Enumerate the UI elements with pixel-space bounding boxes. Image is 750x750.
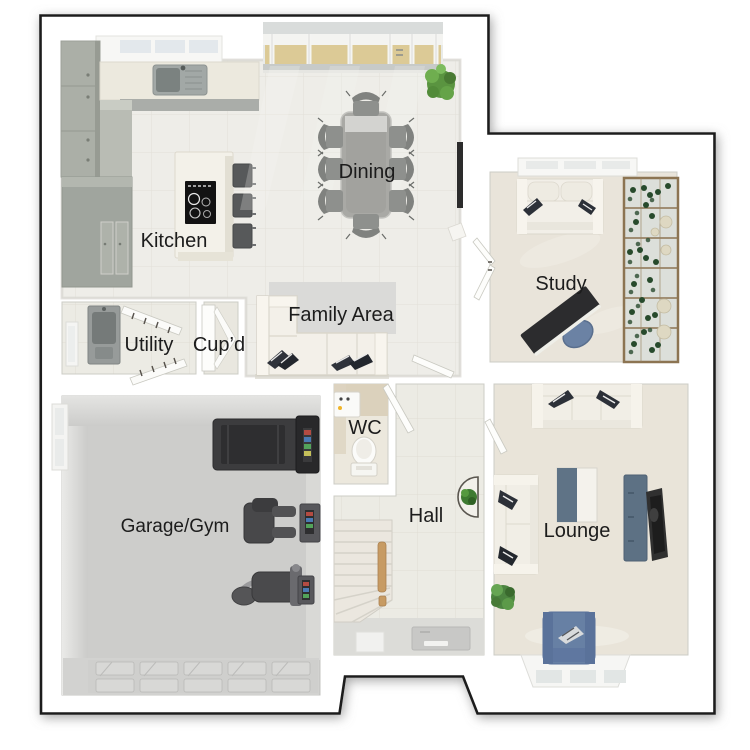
svg-text:Garage/Gym: Garage/Gym bbox=[121, 516, 230, 537]
svg-text:WC: WC bbox=[348, 417, 381, 439]
svg-text:Kitchen: Kitchen bbox=[141, 230, 208, 252]
svg-text:Dining: Dining bbox=[339, 161, 396, 183]
svg-text:Utility: Utility bbox=[125, 334, 174, 356]
svg-text:Family Area: Family Area bbox=[288, 304, 394, 326]
svg-text:Lounge: Lounge bbox=[544, 520, 611, 542]
svg-text:Hall: Hall bbox=[409, 505, 443, 527]
svg-text:Cup’d: Cup’d bbox=[193, 334, 245, 356]
svg-text:Study: Study bbox=[535, 273, 586, 295]
